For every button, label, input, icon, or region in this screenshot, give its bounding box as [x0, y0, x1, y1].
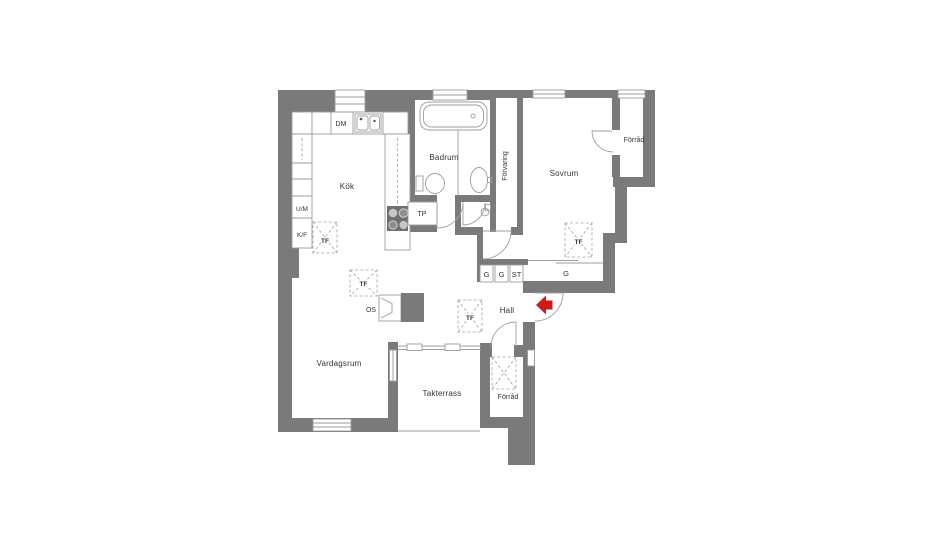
marker-label-fridge: K/F	[297, 232, 307, 239]
wall-recess	[528, 350, 535, 366]
window-living-room	[313, 419, 351, 431]
room-label-living-room: Vardagsrum	[317, 359, 362, 368]
marker-label-tp: TP	[418, 211, 427, 218]
marker-label-tf-living: TF	[360, 281, 368, 288]
closet-label-g2: G	[499, 270, 505, 279]
stove-icon	[387, 206, 408, 231]
bathtub-icon	[420, 102, 487, 130]
marker-label-dishwasher: DM	[336, 121, 347, 128]
room-label-hall: Hall	[500, 306, 515, 315]
floor-plan: Kök Badrum Sovrum Förråd Förvaring Hall …	[0, 0, 940, 541]
toilet-icon	[416, 174, 445, 194]
room-label-kitchen: Kök	[340, 182, 355, 191]
room-label-bedroom: Sovrum	[550, 169, 579, 178]
closet-label-g-wide: G	[563, 269, 569, 278]
room-label-closet: Förvaring	[502, 151, 509, 181]
room-label-bathroom: Badrum	[429, 153, 458, 162]
marker-label-washer: U/M	[296, 206, 308, 213]
room-label-terrace: Takterrass	[423, 389, 462, 398]
closet-label-st: ST	[512, 270, 522, 279]
marker-label-fireplace: OS	[366, 307, 376, 314]
marker-label-tf-kitchen: TF	[321, 238, 329, 245]
room-label-storage-bottom: Förråd	[498, 393, 519, 401]
fireplace-icon	[379, 293, 424, 322]
marker-label-tf-bedroom: TF	[575, 239, 583, 246]
page-background	[0, 0, 940, 541]
window-kitchen	[335, 90, 365, 112]
sink-icon	[355, 114, 381, 132]
room-label-storage-top: Förråd	[624, 136, 645, 144]
closet-label-g1: G	[484, 270, 490, 279]
marker-label-tf-hall: TF	[466, 315, 474, 322]
